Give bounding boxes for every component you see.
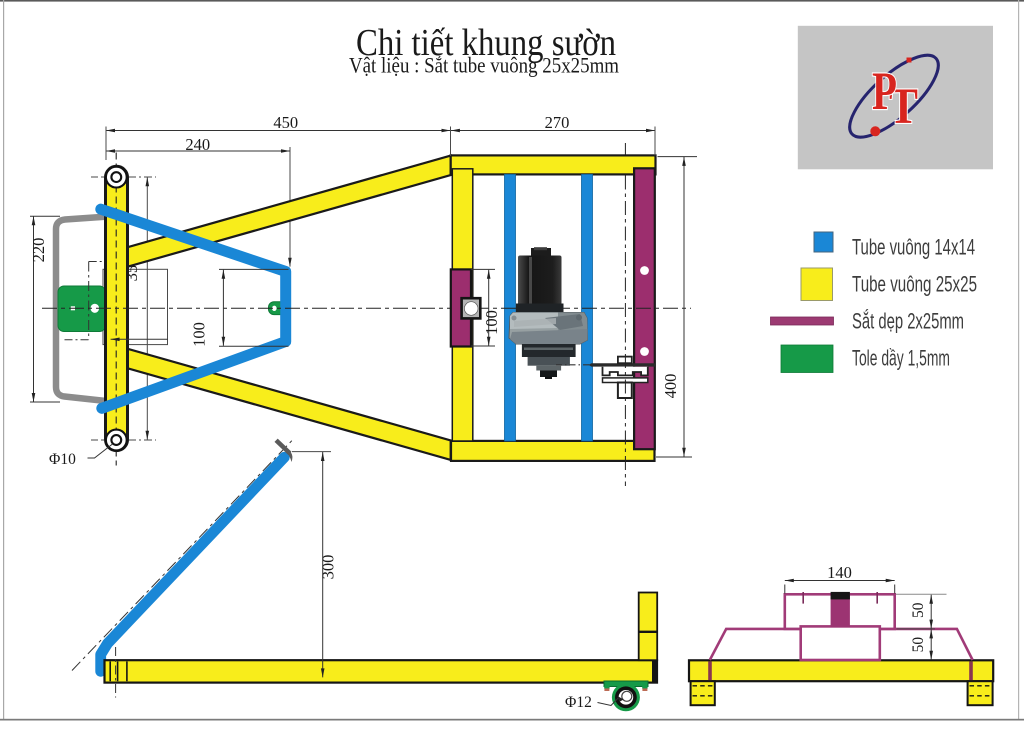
svg-text:Φ12: Φ12 <box>565 694 592 711</box>
svg-text:Tube vuông 14x14: Tube vuông 14x14 <box>852 235 975 260</box>
svg-text:220: 220 <box>29 238 48 263</box>
svg-text:100: 100 <box>482 310 501 335</box>
svg-text:Tube vuông 25x25: Tube vuông 25x25 <box>852 272 977 297</box>
svg-text:140: 140 <box>827 563 852 582</box>
svg-text:300: 300 <box>319 555 338 580</box>
svg-text:Tole dầy 1,5mm: Tole dầy 1,5mm <box>852 346 950 371</box>
svg-text:270: 270 <box>545 113 570 132</box>
svg-text:Vật liệu : Sắt tube vuông 25x2: Vật liệu : Sắt tube vuông 25x25mm <box>349 53 619 78</box>
svg-text:50: 50 <box>910 637 927 653</box>
svg-text:240: 240 <box>185 135 210 154</box>
svg-text:50: 50 <box>910 602 927 618</box>
svg-text:100: 100 <box>190 322 209 347</box>
svg-text:P: P <box>872 61 897 121</box>
svg-text:Sắt dẹp 2x25mm: Sắt dẹp 2x25mm <box>852 309 964 334</box>
svg-text:450: 450 <box>273 113 298 132</box>
svg-text:Φ10: Φ10 <box>49 451 76 468</box>
svg-text:400: 400 <box>661 374 680 399</box>
